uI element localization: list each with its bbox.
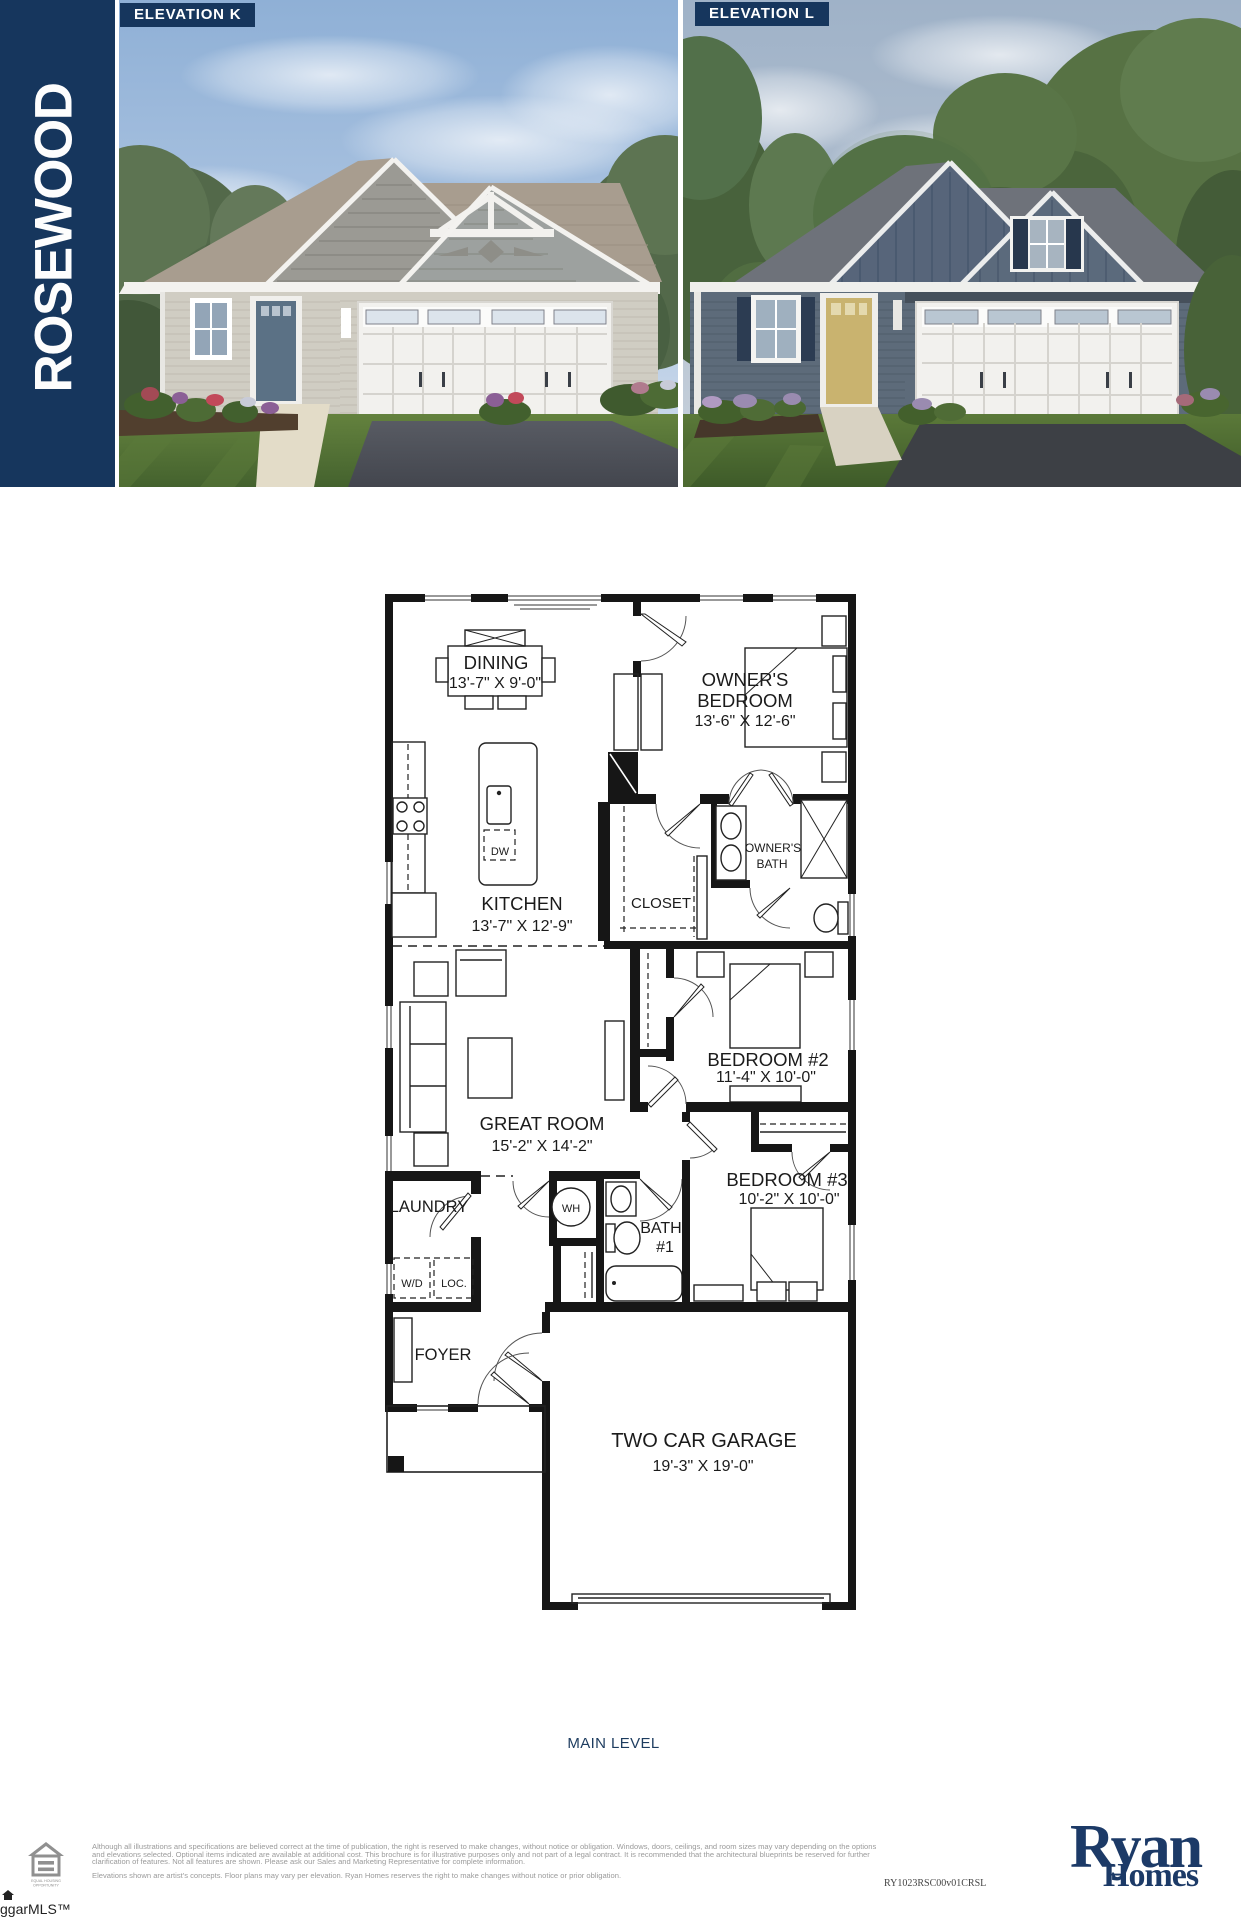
svg-text:13'-7" X 12'-9": 13'-7" X 12'-9"	[471, 918, 572, 935]
svg-text:ROSEWOOD: ROSEWOOD	[25, 83, 84, 392]
svg-text:OPPORTUNITY: OPPORTUNITY	[33, 1884, 59, 1888]
svg-text:11'-4" X 10'-0": 11'-4" X 10'-0"	[716, 1069, 816, 1086]
svg-text:OWNER'S: OWNER'S	[745, 841, 801, 855]
svg-text:BATH: BATH	[640, 1220, 681, 1237]
svg-text:KITCHEN: KITCHEN	[481, 893, 562, 914]
svg-text:TWO CAR GARAGE: TWO CAR GARAGE	[611, 1430, 797, 1452]
svg-text:DINING: DINING	[464, 652, 529, 673]
svg-text:Homes: Homes	[1103, 1857, 1199, 1894]
svg-text:WH: WH	[562, 1203, 580, 1215]
svg-text:LOC.: LOC.	[441, 1278, 467, 1290]
svg-text:LAUNDRY: LAUNDRY	[390, 1198, 469, 1216]
svg-text:ggarMLS™: ggarMLS™	[0, 1901, 71, 1917]
svg-text:GREAT ROOM: GREAT ROOM	[480, 1113, 605, 1134]
svg-text:13'-7" X 9'-0": 13'-7" X 9'-0"	[449, 675, 541, 692]
svg-text:EQUAL HOUSING: EQUAL HOUSING	[31, 1879, 61, 1883]
svg-text:19'-3" X 19'-0": 19'-3" X 19'-0"	[652, 1458, 753, 1475]
svg-text:15'-2" X 14'-2": 15'-2" X 14'-2"	[491, 1138, 592, 1155]
svg-text:W/D: W/D	[401, 1278, 422, 1290]
svg-text:10'-2" X 10'-0": 10'-2" X 10'-0"	[738, 1191, 839, 1208]
svg-text:BEDROOM: BEDROOM	[697, 690, 793, 711]
svg-text:BEDROOM #2: BEDROOM #2	[707, 1049, 828, 1070]
svg-text:DW: DW	[491, 846, 510, 858]
svg-text:CLOSET: CLOSET	[631, 895, 691, 912]
svg-text:FOYER: FOYER	[415, 1346, 472, 1364]
svg-text:#1: #1	[656, 1239, 674, 1256]
svg-text:BATH: BATH	[756, 857, 787, 871]
svg-text:OWNER'S: OWNER'S	[702, 669, 789, 690]
svg-text:13'-6" X 12'-6": 13'-6" X 12'-6"	[694, 713, 795, 730]
svg-text:BEDROOM #3: BEDROOM #3	[726, 1169, 847, 1190]
